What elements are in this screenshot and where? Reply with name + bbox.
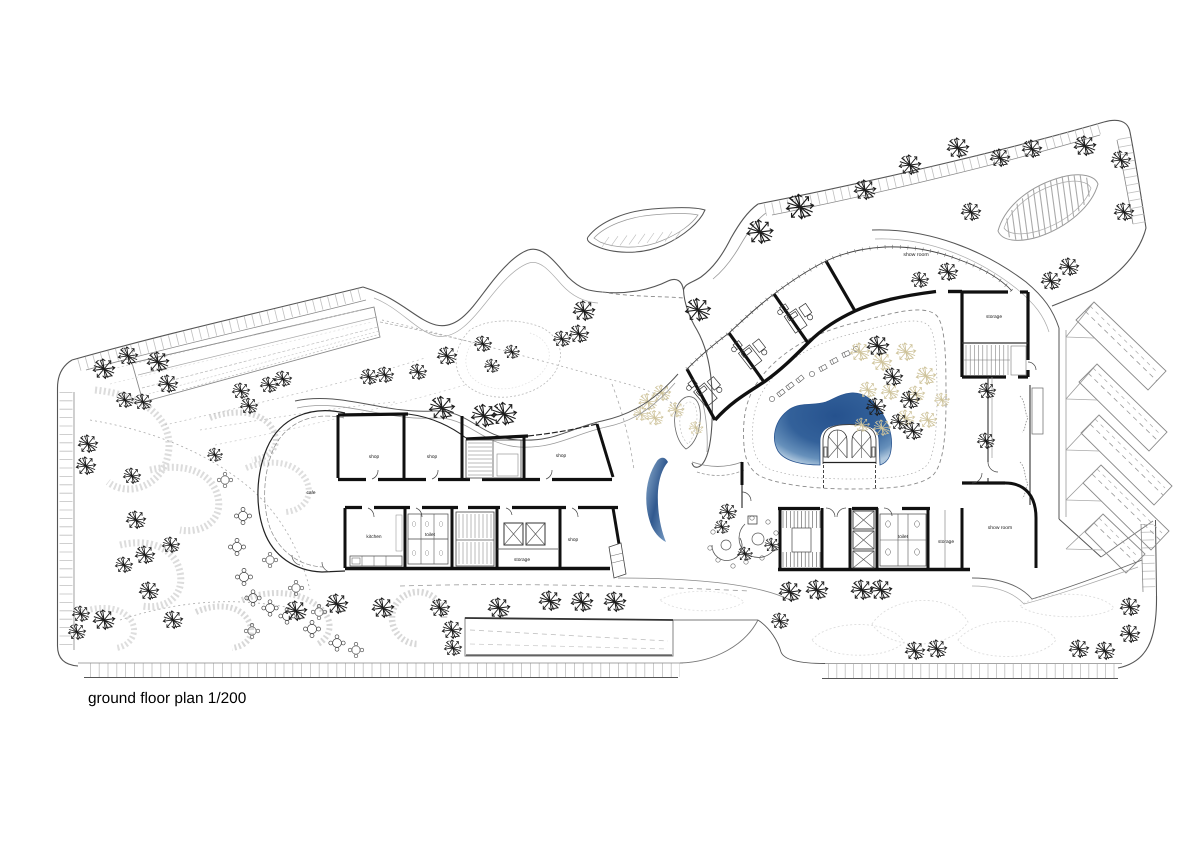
svg-text:storage: storage	[514, 557, 530, 563]
svg-text:toilet: toilet	[898, 534, 909, 540]
svg-text:kitchen: kitchen	[366, 534, 382, 540]
svg-text:storage: storage	[938, 539, 954, 545]
svg-text:storage: storage	[986, 314, 1002, 320]
svg-text:shop: shop	[556, 453, 567, 459]
svg-text:ground floor plan 1/200: ground floor plan 1/200	[88, 690, 246, 707]
svg-text:show room: show room	[988, 525, 1012, 531]
svg-text:shop: shop	[427, 454, 438, 460]
svg-text:toilet: toilet	[425, 532, 436, 538]
svg-text:show room: show room	[903, 252, 928, 258]
svg-text:shop: shop	[568, 537, 579, 543]
svg-text:shop: shop	[369, 454, 380, 460]
svg-text:cafe: cafe	[306, 490, 315, 496]
